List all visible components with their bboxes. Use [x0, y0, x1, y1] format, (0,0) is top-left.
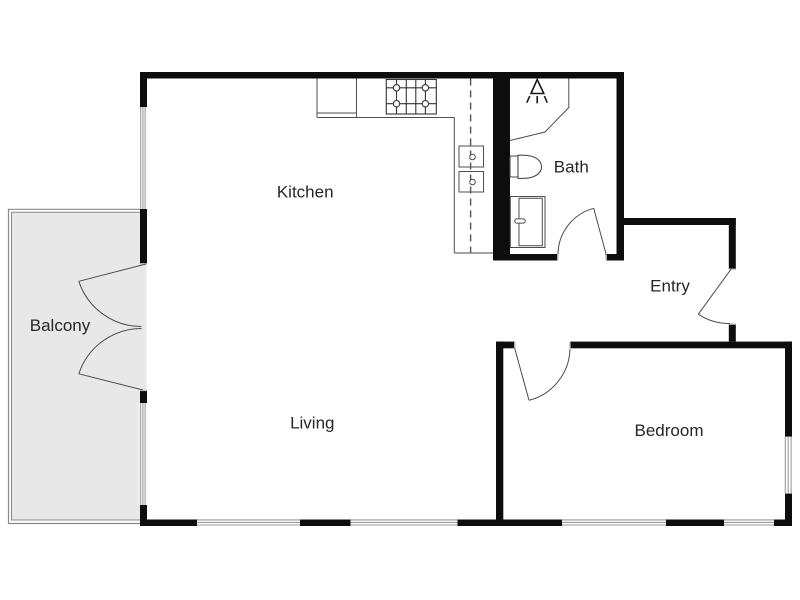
svg-text:Bedroom: Bedroom [635, 421, 704, 440]
svg-text:Balcony: Balcony [30, 316, 91, 335]
svg-text:Living: Living [290, 414, 334, 433]
svg-text:Entry: Entry [650, 277, 690, 296]
svg-text:Bath: Bath [554, 157, 589, 176]
svg-text:Kitchen: Kitchen [277, 182, 334, 201]
